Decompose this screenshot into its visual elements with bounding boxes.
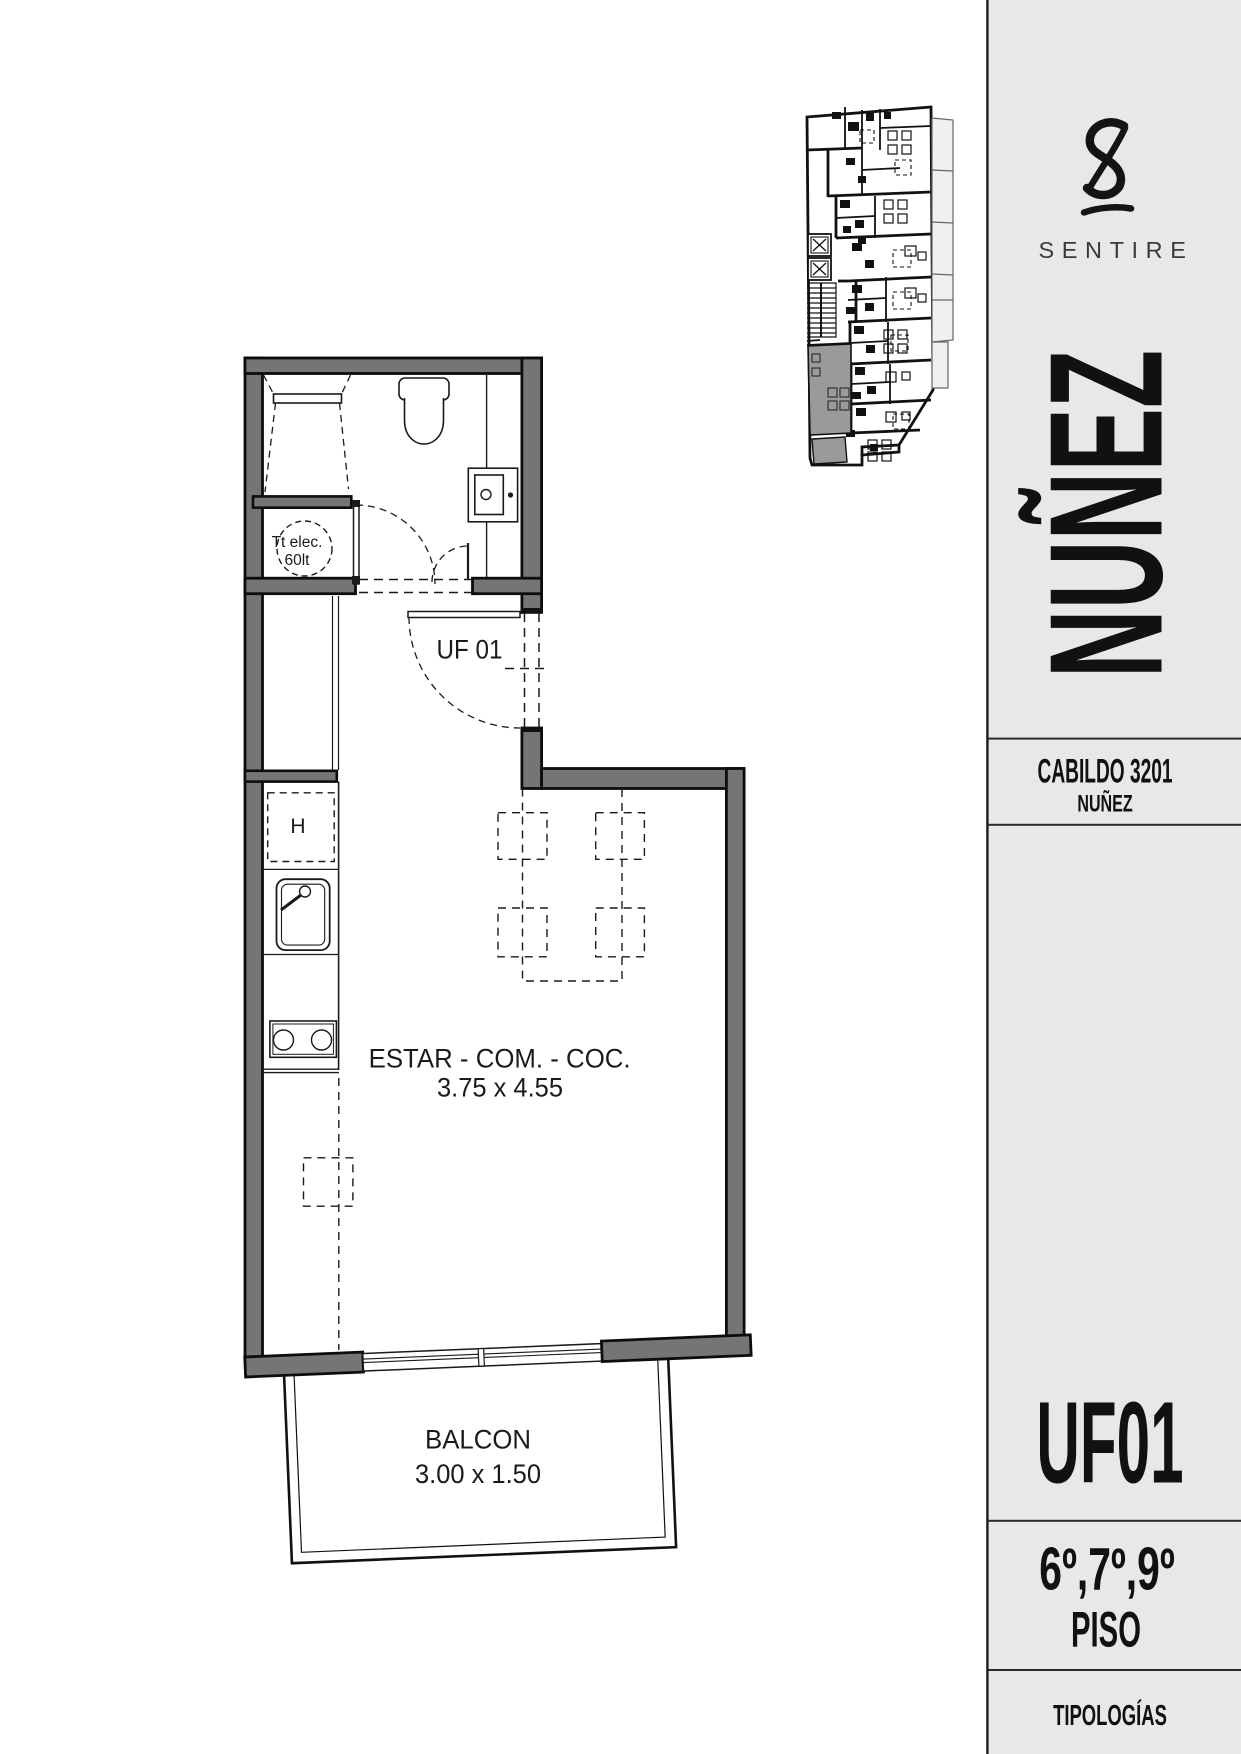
svg-text:TIPOLOGÍAS: TIPOLOGÍAS — [1053, 1699, 1167, 1732]
svg-text:NUÑEZ: NUÑEZ — [1017, 350, 1197, 678]
svg-text:ESTAR - COM. - COC.: ESTAR - COM. - COC. — [369, 1044, 631, 1074]
svg-text:UF 01: UF 01 — [437, 634, 503, 664]
svg-text:PISO: PISO — [1071, 1601, 1141, 1657]
svg-text:6º,7º,9º: 6º,7º,9º — [1039, 1536, 1174, 1603]
svg-text:BALCON: BALCON — [425, 1425, 531, 1455]
svg-text:3.00 x 1.50: 3.00 x 1.50 — [415, 1459, 541, 1489]
svg-text:CABILDO 3201: CABILDO 3201 — [1038, 752, 1173, 790]
svg-text:3.75 x 4.55: 3.75 x 4.55 — [437, 1073, 563, 1103]
svg-text:60lt: 60lt — [285, 552, 311, 569]
svg-text:UF01: UF01 — [1036, 1377, 1183, 1508]
svg-text:SENTIRE: SENTIRE — [1038, 237, 1193, 263]
svg-text:H: H — [290, 815, 305, 838]
svg-text:Tt elec.: Tt elec. — [272, 534, 323, 551]
svg-text:NUÑEZ: NUÑEZ — [1077, 790, 1132, 817]
